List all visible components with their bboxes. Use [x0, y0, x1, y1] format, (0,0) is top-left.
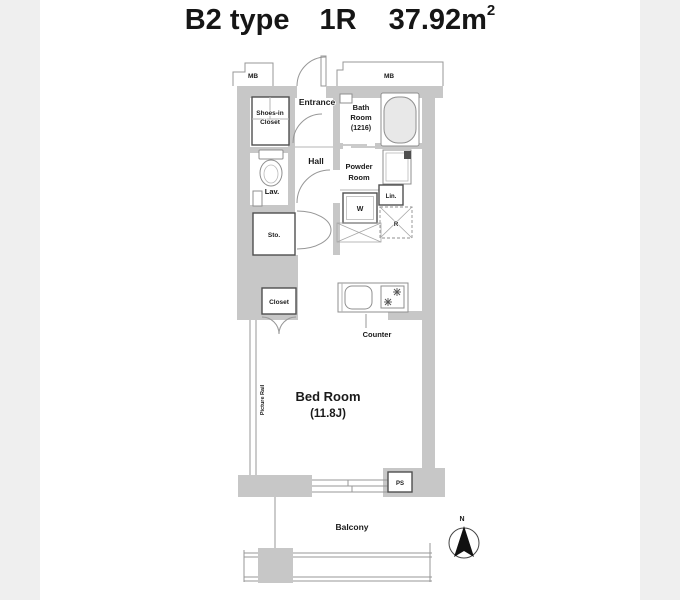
kitchen-counter [338, 283, 408, 328]
bath-shelf [340, 94, 352, 103]
entrance-door-leaf [321, 56, 326, 86]
wall-corridor-left [333, 203, 340, 255]
meter-box-outlines [233, 62, 443, 86]
wall-bottom-left [238, 475, 312, 497]
label-bedroom-1: Bed Room [296, 389, 361, 404]
label-hall: Hall [308, 156, 324, 166]
label-washer: W [357, 206, 364, 213]
toilet [253, 150, 283, 206]
label-bath-3: (1216) [351, 125, 371, 132]
label-mb-right: MB [384, 73, 394, 80]
lav-cabinet [253, 191, 262, 206]
label-mb-left: MB [248, 73, 258, 80]
label-powder-2: Room [348, 173, 370, 182]
wall-left-upper [237, 86, 250, 207]
label-powder-1: Powder [345, 162, 372, 171]
label-closet: Closet [269, 299, 290, 306]
hall-powder-door-arc [297, 170, 330, 203]
stove-burner-1 [393, 288, 401, 296]
toilet-bowl [260, 160, 282, 186]
stove-box [381, 286, 404, 308]
entrance-door-arc [297, 57, 326, 86]
bath-sliding-door [343, 143, 375, 149]
bathtub-inner [384, 97, 416, 143]
entrance-door [297, 56, 326, 86]
compass-needle [454, 526, 474, 557]
balcony [244, 497, 432, 583]
bath-door-gap [343, 143, 375, 149]
sink-faucet-block [404, 151, 411, 159]
entrance-hall-door-arc [293, 114, 322, 143]
label-storage: Sto. [268, 232, 280, 239]
label-lavatory: Lav. [265, 187, 279, 196]
compass [449, 526, 479, 558]
toilet-tank [259, 150, 283, 159]
balcony-pillar [258, 548, 293, 583]
wall-right [422, 86, 435, 476]
label-bath-1: Bath [353, 103, 370, 112]
laundry-counter-space [337, 223, 381, 242]
bottom-window [312, 480, 388, 492]
bedroom-left-wall [250, 320, 256, 475]
label-counter: Counter [363, 330, 392, 339]
floor-plan: MB MB Entrance Shoes-in Closet Bath Room… [0, 0, 680, 600]
label-refrigerator: R [394, 222, 399, 228]
label-picture-rail: Picture Rail [260, 384, 266, 415]
corridor-door-arc [297, 211, 331, 249]
wall-left-mid [237, 207, 253, 320]
label-bath-2: Room [350, 113, 372, 122]
kitchen-sink [345, 286, 372, 309]
label-pipe-space: PS [396, 481, 404, 487]
label-bedroom-2: (11.8J) [310, 408, 346, 420]
label-shoes-closet-1: Shoes-in [256, 110, 283, 117]
label-linen: Lin. [386, 194, 397, 200]
label-shoes-closet-2: Closet [260, 119, 281, 126]
label-balcony: Balcony [335, 522, 368, 532]
stove-burner-2 [384, 298, 392, 306]
wall-entrance-bath-divider [333, 98, 340, 170]
powder-sink [383, 150, 411, 184]
label-compass-north: N [459, 516, 464, 523]
label-entrance: Entrance [299, 97, 336, 107]
